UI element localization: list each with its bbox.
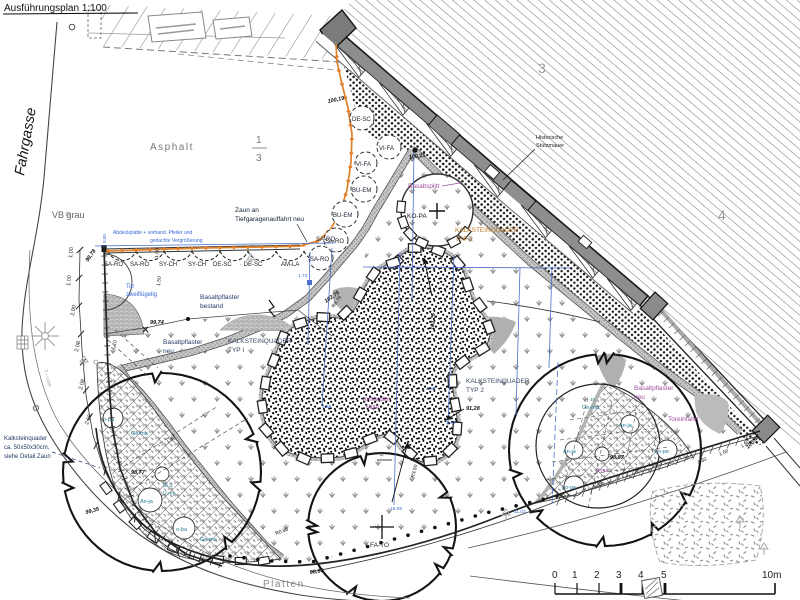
svg-text:SY-CH: SY-CH	[159, 262, 177, 268]
svg-text:Stützmauer: Stützmauer	[536, 143, 564, 149]
svg-text:10m: 10m	[762, 570, 781, 581]
svg-text:98,87: 98,87	[610, 455, 625, 461]
svg-text:BU-EM: BU-EM	[333, 213, 352, 219]
svg-text:Ge-ma: Ge-ma	[200, 537, 218, 543]
svg-text:0: 0	[552, 570, 558, 581]
svg-text:4: 4	[718, 207, 726, 223]
svg-text:An-ja: An-ja	[619, 423, 633, 429]
svg-text:An-ja: An-ja	[563, 449, 577, 455]
svg-text:Ge-ma: Ge-ma	[131, 431, 149, 437]
svg-text:An-ja: An-ja	[140, 499, 154, 505]
svg-text:Historische: Historische	[536, 135, 563, 141]
svg-text:Basaltpflaster: Basaltpflaster	[163, 339, 203, 346]
svg-text:1.73: 1.73	[446, 420, 456, 426]
svg-text:Asphalt: Asphalt	[150, 142, 194, 153]
svg-text:Kalksteinquader: Kalksteinquader	[4, 436, 47, 442]
svg-text:Ge-ma: Ge-ma	[582, 405, 600, 411]
svg-text:2: 2	[594, 570, 600, 581]
svg-text:1.50: 1.50	[156, 276, 163, 286]
svg-text:Basaltpflaster: Basaltpflaster	[634, 385, 674, 392]
svg-text:SA-RO: SA-RO	[104, 262, 123, 268]
svg-text:40: 40	[590, 397, 596, 402]
svg-text:11.02: 11.02	[514, 509, 526, 515]
svg-text:0,00: 0,00	[102, 234, 107, 243]
svg-text:16.06: 16.06	[390, 506, 402, 512]
svg-text:BLS: BLS	[163, 483, 173, 489]
svg-text:zweiflügelig: zweiflügelig	[126, 292, 157, 298]
svg-text:5: 5	[661, 570, 667, 581]
svg-text:Tor: Tor	[126, 284, 134, 290]
svg-text:o-pa: o-pa	[103, 417, 115, 423]
svg-text:U-my: U-my	[163, 491, 175, 497]
svg-text:bestand: bestand	[200, 303, 224, 310]
svg-text:Platten: Platten	[263, 579, 305, 590]
svg-text:KALKSTEINQUADER: KALKSTEINQUADER	[455, 227, 519, 234]
svg-text:FA-TO: FA-TO	[370, 542, 389, 549]
svg-text:ca. 50x50x30cm,: ca. 50x50x30cm,	[4, 445, 50, 451]
svg-text:VI-FA: VI-FA	[356, 162, 371, 168]
svg-text:1: 1	[256, 135, 262, 146]
svg-text:Basaltsplitt: Basaltsplitt	[408, 183, 440, 190]
svg-text:TYP 1: TYP 1	[455, 236, 473, 243]
svg-text:U-ma: U-ma	[596, 468, 608, 474]
svg-text:Tiefgaragenauffahrt neu: Tiefgaragenauffahrt neu	[235, 216, 304, 223]
svg-text:KO-PA: KO-PA	[407, 213, 427, 220]
svg-text:SY-CH: SY-CH	[188, 262, 206, 268]
svg-text:neu: neu	[634, 394, 645, 401]
svg-text:TYP 2: TYP 2	[466, 387, 484, 394]
svg-text:VB grau: VB grau	[52, 210, 85, 220]
svg-text:99,74: 99,74	[150, 320, 164, 326]
svg-text:KALKSTEINQUADER: KALKSTEINQUADER	[466, 378, 530, 385]
svg-text:Ausführungsplan 1:100: Ausführungsplan 1:100	[4, 3, 107, 14]
svg-text:⌀: ⌀	[380, 452, 384, 458]
svg-text:102,26: 102,26	[430, 312, 437, 330]
svg-text:o-ba: o-ba	[176, 527, 188, 533]
svg-text:DE-SC: DE-SC	[213, 262, 232, 268]
svg-text:Basaltpflaster: Basaltpflaster	[200, 294, 240, 301]
svg-text:Abdeckplatte + vorhand. Pfeile: Abdeckplatte + vorhand. Pfeiler und	[113, 230, 193, 236]
svg-text:98,77: 98,77	[131, 470, 146, 476]
svg-text:1.00: 1.00	[154, 248, 161, 258]
svg-text:Zaun an: Zaun an	[235, 207, 259, 214]
svg-text:BU-EM: BU-EM	[352, 188, 371, 194]
svg-text:TYP I: TYP I	[228, 347, 244, 354]
svg-text:3: 3	[616, 570, 622, 581]
svg-text:SA-RO: SA-RO	[310, 257, 329, 263]
svg-text:gedachte Vergrößerung: gedachte Vergrößerung	[150, 238, 203, 244]
svg-text:KALKSTEINQUADER: KALKSTEINQUADER	[228, 338, 292, 345]
svg-text:Mitte: Mitte	[366, 405, 380, 411]
svg-text:1.73: 1.73	[298, 273, 308, 279]
svg-text:siehe Detail Zaun: siehe Detail Zaun	[4, 454, 51, 460]
svg-text:SA-RO: SA-RO	[130, 262, 149, 268]
svg-text:DE-SC: DE-SC	[352, 117, 371, 123]
svg-text:3: 3	[538, 60, 546, 76]
svg-text:1: 1	[572, 570, 578, 581]
svg-text:4: 4	[638, 570, 644, 581]
svg-text:AM-LA: AM-LA	[281, 262, 299, 268]
svg-text:neu: neu	[163, 348, 174, 355]
svg-text:4.33: 4.33	[426, 386, 436, 392]
svg-text:91,28: 91,28	[466, 406, 481, 412]
svg-text:vorhanden: vorhanden	[362, 397, 390, 403]
svg-text:Lo-pe: Lo-pe	[655, 449, 669, 455]
svg-text:VI-FA: VI-FA	[379, 146, 394, 152]
svg-text:3: 3	[256, 153, 262, 164]
svg-text:SA-RO: SA-RO	[316, 237, 335, 243]
svg-text:Toreinfahrt: Toreinfahrt	[668, 416, 699, 423]
svg-text:4.68: 4.68	[322, 404, 332, 410]
